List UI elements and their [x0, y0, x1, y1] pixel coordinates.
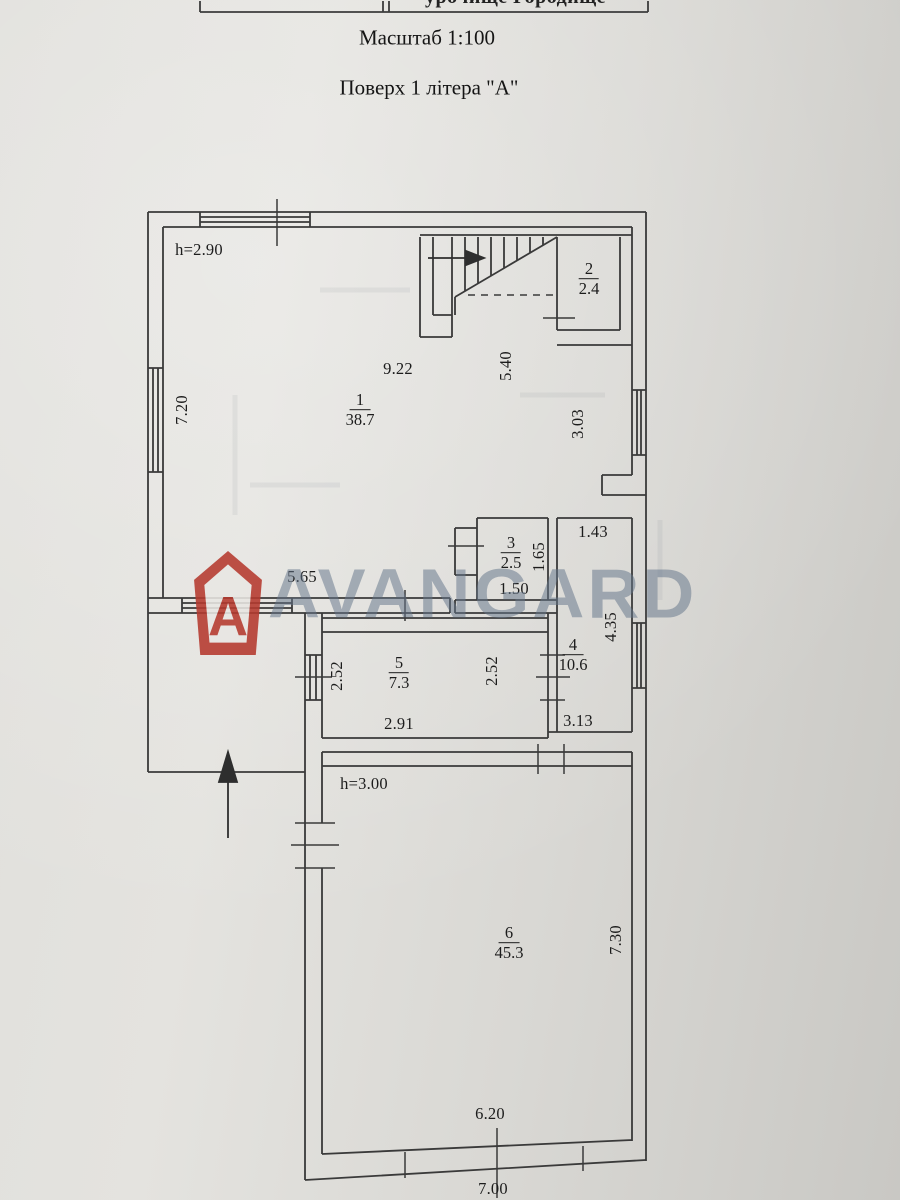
- clipped-location-header: урочище Городище: [383, 0, 648, 11]
- room-label-5: 5 7.3: [389, 654, 410, 692]
- dim-room6-right: 7.30: [606, 925, 626, 955]
- room-label-2: 2 2.4: [579, 260, 600, 298]
- dim-room1-top-width: 9.22: [383, 359, 413, 379]
- room-3-number: 3: [501, 534, 521, 553]
- dim-room4-top: 1.43: [578, 522, 608, 542]
- height-label-room6: h=3.00: [340, 774, 388, 794]
- dim-left-wall: 7.20: [172, 395, 192, 425]
- room-4-number: 4: [563, 636, 583, 655]
- room-label-6: 6 45.3: [495, 924, 524, 962]
- room-label-4: 4 10.6: [559, 636, 588, 674]
- room-label-3: 3 2.5: [501, 534, 522, 572]
- dim-room3-height: 1.65: [529, 542, 549, 572]
- dim-room1-stair-side: 5.40: [496, 351, 516, 381]
- scanned-floorplan-page: урочище Городище Масштаб 1:100 Поверх 1 …: [0, 0, 900, 1200]
- room-1-area: 38.7: [346, 411, 375, 429]
- location-header-text: урочище Городище: [383, 0, 648, 9]
- height-label-room1: h=2.90: [175, 240, 223, 260]
- dim-room5-right: 2.52: [482, 656, 502, 686]
- scale-title: Масштаб 1:100: [359, 26, 495, 51]
- room-3-area: 2.5: [501, 554, 522, 572]
- entrance-arrow-icon: [219, 752, 237, 838]
- room-1-number: 1: [350, 391, 370, 410]
- wall-lines: [148, 212, 646, 1180]
- floorplan-linework: [0, 0, 900, 1200]
- dim-right-mid: 3.03: [568, 409, 588, 439]
- dim-room6-bottom-inner: 6.20: [475, 1104, 505, 1124]
- room-6-number: 6: [499, 924, 519, 943]
- dim-room6-bottom-outer: 7.00: [478, 1179, 508, 1199]
- dim-room4-right: 4.35: [601, 612, 621, 642]
- dim-room3-width: 1.50: [499, 579, 529, 599]
- room-2-number: 2: [579, 260, 599, 279]
- room-4-area: 10.6: [559, 656, 588, 674]
- dim-room4-bottom: 3.13: [563, 711, 593, 731]
- room-label-1: 1 38.7: [346, 391, 375, 429]
- room-5-area: 7.3: [389, 674, 410, 692]
- floor-title: Поверх 1 літера "А": [340, 76, 519, 101]
- dim-room1-bottom: 5.65: [287, 567, 317, 587]
- stair-direction-arrow-icon: [428, 251, 484, 265]
- room-2-area: 2.4: [579, 280, 600, 298]
- dim-room5-width: 2.91: [384, 714, 414, 734]
- room-5-number: 5: [389, 654, 409, 673]
- dim-room5-left: 2.52: [327, 661, 347, 691]
- room-6-area: 45.3: [495, 944, 524, 962]
